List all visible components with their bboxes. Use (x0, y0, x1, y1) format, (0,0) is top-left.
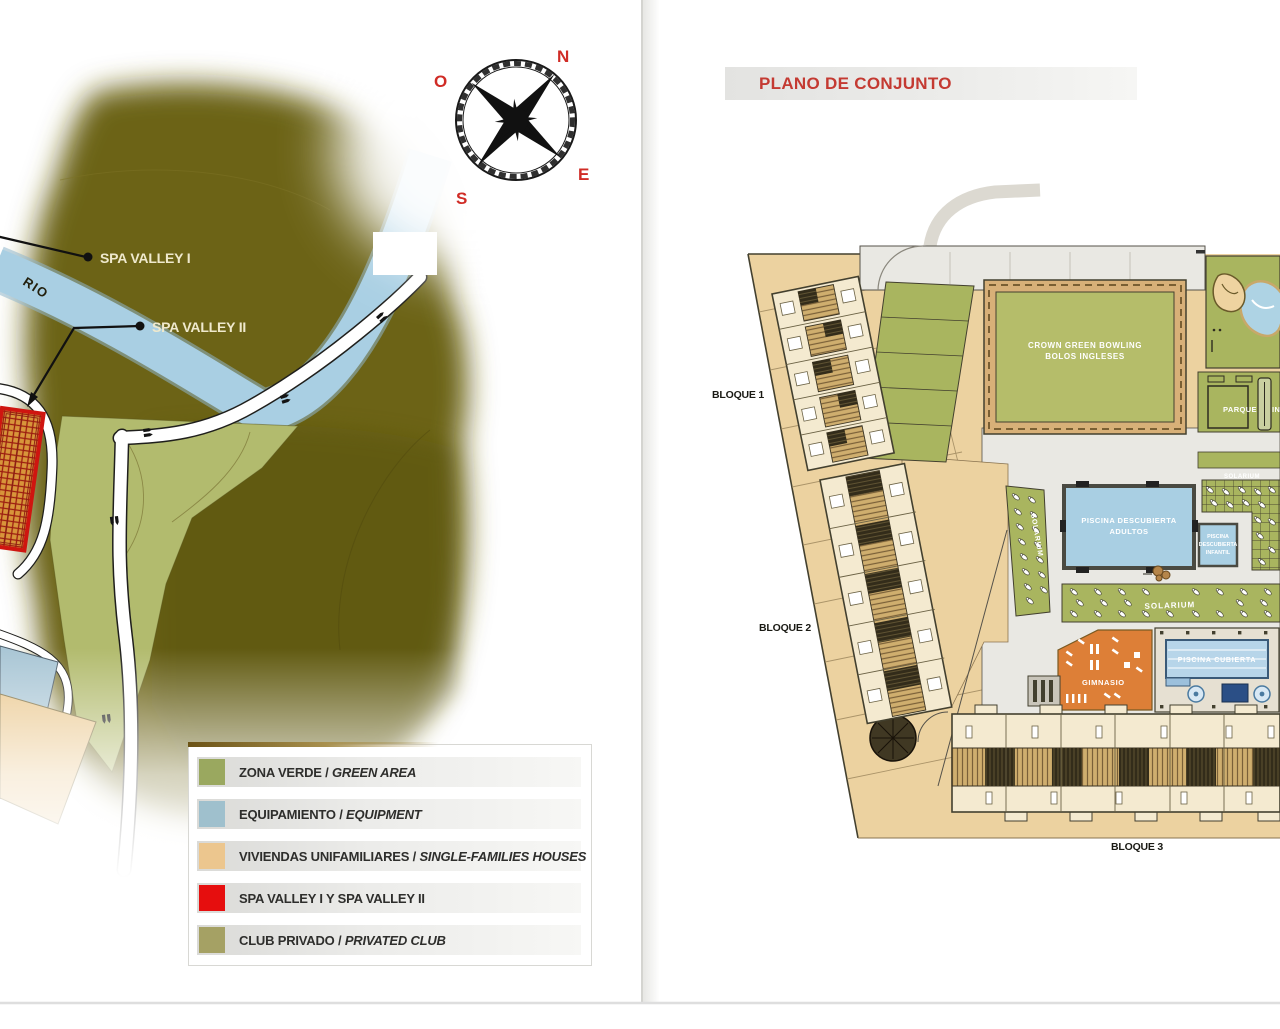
legend-swatch-equipment (199, 801, 225, 827)
services-block (1028, 676, 1060, 706)
solarium-horizontal: SOLARIUM (1062, 584, 1280, 622)
piscina-adultos: PISCINA DESCUBIERTA ADULTOS (1060, 481, 1198, 581)
legend-label-equipment: EQUIPAMIENTO / EQUIPMENT (239, 807, 422, 822)
legend-row-private-club: CLUB PRIVADO / PRIVATED CLUB (197, 925, 581, 955)
bloque-3-label: BLOQUE 3 (1111, 841, 1163, 853)
parque-infantil: PARQUE INFANTIL (1198, 372, 1280, 432)
legend-row-green-area: ZONA VERDE / GREEN AREA (197, 757, 581, 787)
piscina-cubierta-label: PISCINA CUBIERTA (1178, 657, 1257, 664)
bowling-green: CROWN GREEN BOWLING BOLOS INGLESES (984, 280, 1186, 434)
legend-swatch-spa-valley (199, 885, 225, 911)
legend-label-private-club: CLUB PRIVADO / PRIVATED CLUB (239, 933, 446, 948)
bowling-label-2: BOLOS INGLESES (1045, 352, 1125, 361)
parque-label: PARQUE (1223, 405, 1257, 414)
legend-label-houses: VIVIENDAS UNIFAMILIARES / SINGLE-FAMILIE… (239, 849, 586, 864)
compass-o: O (434, 72, 447, 91)
legend-row-houses: VIVIENDAS UNIFAMILIARES / SINGLE-FAMILIE… (197, 841, 581, 871)
spa-valley-1-label: SPA VALLEY I (100, 250, 190, 266)
brochure-page: RIO SPA VALLEY I SPA VALLEY II (0, 0, 1280, 1024)
legend-accent-line (188, 742, 438, 747)
piscina-cubierta: PISCINA CUBIERTA (1155, 628, 1279, 712)
callout-dot (84, 253, 93, 262)
piscina-infantil: PISCINA DESCUBIERTA INFANTIL (1199, 524, 1238, 566)
plan-title: PLANO DE CONJUNTO (725, 74, 952, 94)
access-road (860, 190, 1205, 290)
legend-row-spa-valley: SPA VALLEY I Y SPA VALLEY II (197, 883, 581, 913)
legend-label-spa-valley: SPA VALLEY I Y SPA VALLEY II (239, 891, 425, 906)
page-fold-shadow (643, 0, 659, 1002)
compass-e: E (578, 165, 589, 184)
bloque-2-label: BLOQUE 2 (759, 622, 811, 634)
solarium-label-small: SOLARIUM (1224, 474, 1260, 480)
legend-swatch-green-area (199, 759, 225, 785)
solarium-label-horizontal: SOLARIUM (1144, 600, 1195, 611)
parque-label-2: INFANTIL (1272, 405, 1280, 414)
pond-park (1206, 256, 1280, 368)
compass-n: N (557, 47, 569, 66)
legend-label-green-area: ZONA VERDE / GREEN AREA (239, 765, 416, 780)
piscina-infantil-label-3: INFANTIL (1206, 550, 1231, 556)
bowling-label-1: CROWN GREEN BOWLING (1028, 341, 1142, 350)
legend-swatch-houses (199, 843, 225, 869)
jacuzzi-box (1222, 684, 1248, 702)
legend: ZONA VERDE / GREEN AREA EQUIPAMIENTO / E… (188, 744, 592, 966)
piscina-infantil-label-2: DESCUBIERTA (1199, 542, 1238, 548)
compass-s: S (456, 189, 467, 208)
right-page-plan: CROWN GREEN BOWLING BOLOS INGLESES PARQU… (643, 0, 1280, 1002)
piscina-infantil-label-1: PISCINA (1207, 534, 1229, 540)
legend-swatch-private-club (199, 927, 225, 953)
piscina-adultos-label-1: PISCINA DESCUBIERTA (1081, 516, 1176, 525)
bloque-1-label: BLOQUE 1 (712, 389, 764, 401)
spa-valley-2-label: SPA VALLEY II (152, 319, 246, 335)
bloque-3-building (952, 705, 1280, 821)
piscina-adultos-label-2: ADULTOS (1109, 527, 1148, 536)
callout-dot (136, 322, 145, 331)
plan-title-bar: PLANO DE CONJUNTO (725, 67, 1137, 100)
legend-row-equipment: EQUIPAMIENTO / EQUIPMENT (197, 799, 581, 829)
gimnasio-label: GIMNASIO (1082, 678, 1125, 687)
white-callout-box (373, 232, 437, 275)
